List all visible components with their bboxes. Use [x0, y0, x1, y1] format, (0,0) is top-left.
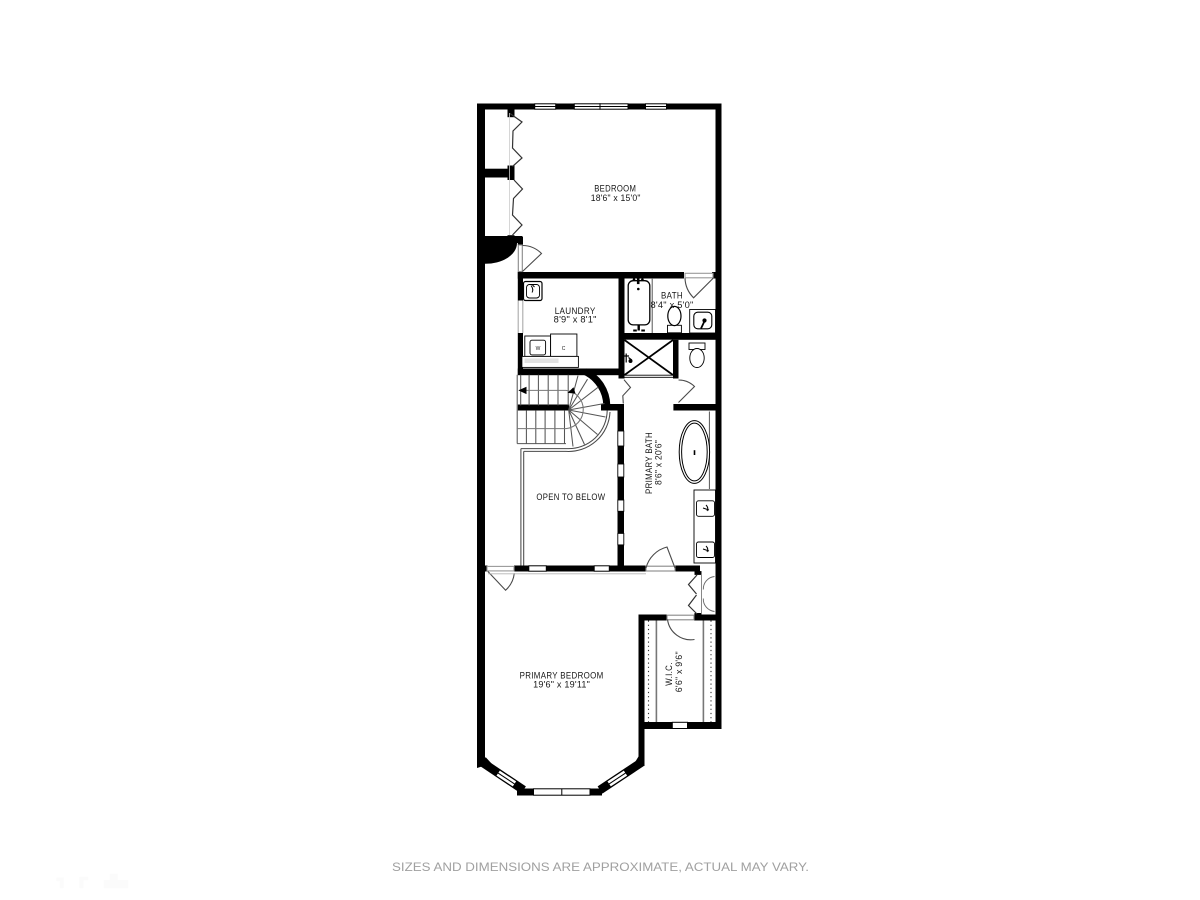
svg-text:19'6" x 19'11": 19'6" x 19'11" [533, 680, 590, 690]
svg-text:OPEN TO BELOW: OPEN TO BELOW [536, 492, 605, 503]
svg-text:8'6" x 20'6": 8'6" x 20'6" [654, 440, 664, 485]
svg-text:8'9" x 8'1": 8'9" x 8'1" [554, 315, 597, 325]
svg-text:8'4" x 5'0": 8'4" x 5'0" [651, 300, 694, 310]
svg-text:C: C [562, 346, 566, 352]
svg-text:W: W [536, 346, 541, 352]
svg-text:SIZES AND DIMENSIONS ARE APPRO: SIZES AND DIMENSIONS ARE APPROXIMATE, AC… [392, 862, 809, 874]
svg-text:6'6" x 9'6": 6'6" x 9'6" [674, 651, 684, 692]
svg-text:18'6" x 15'0": 18'6" x 15'0" [591, 193, 641, 203]
